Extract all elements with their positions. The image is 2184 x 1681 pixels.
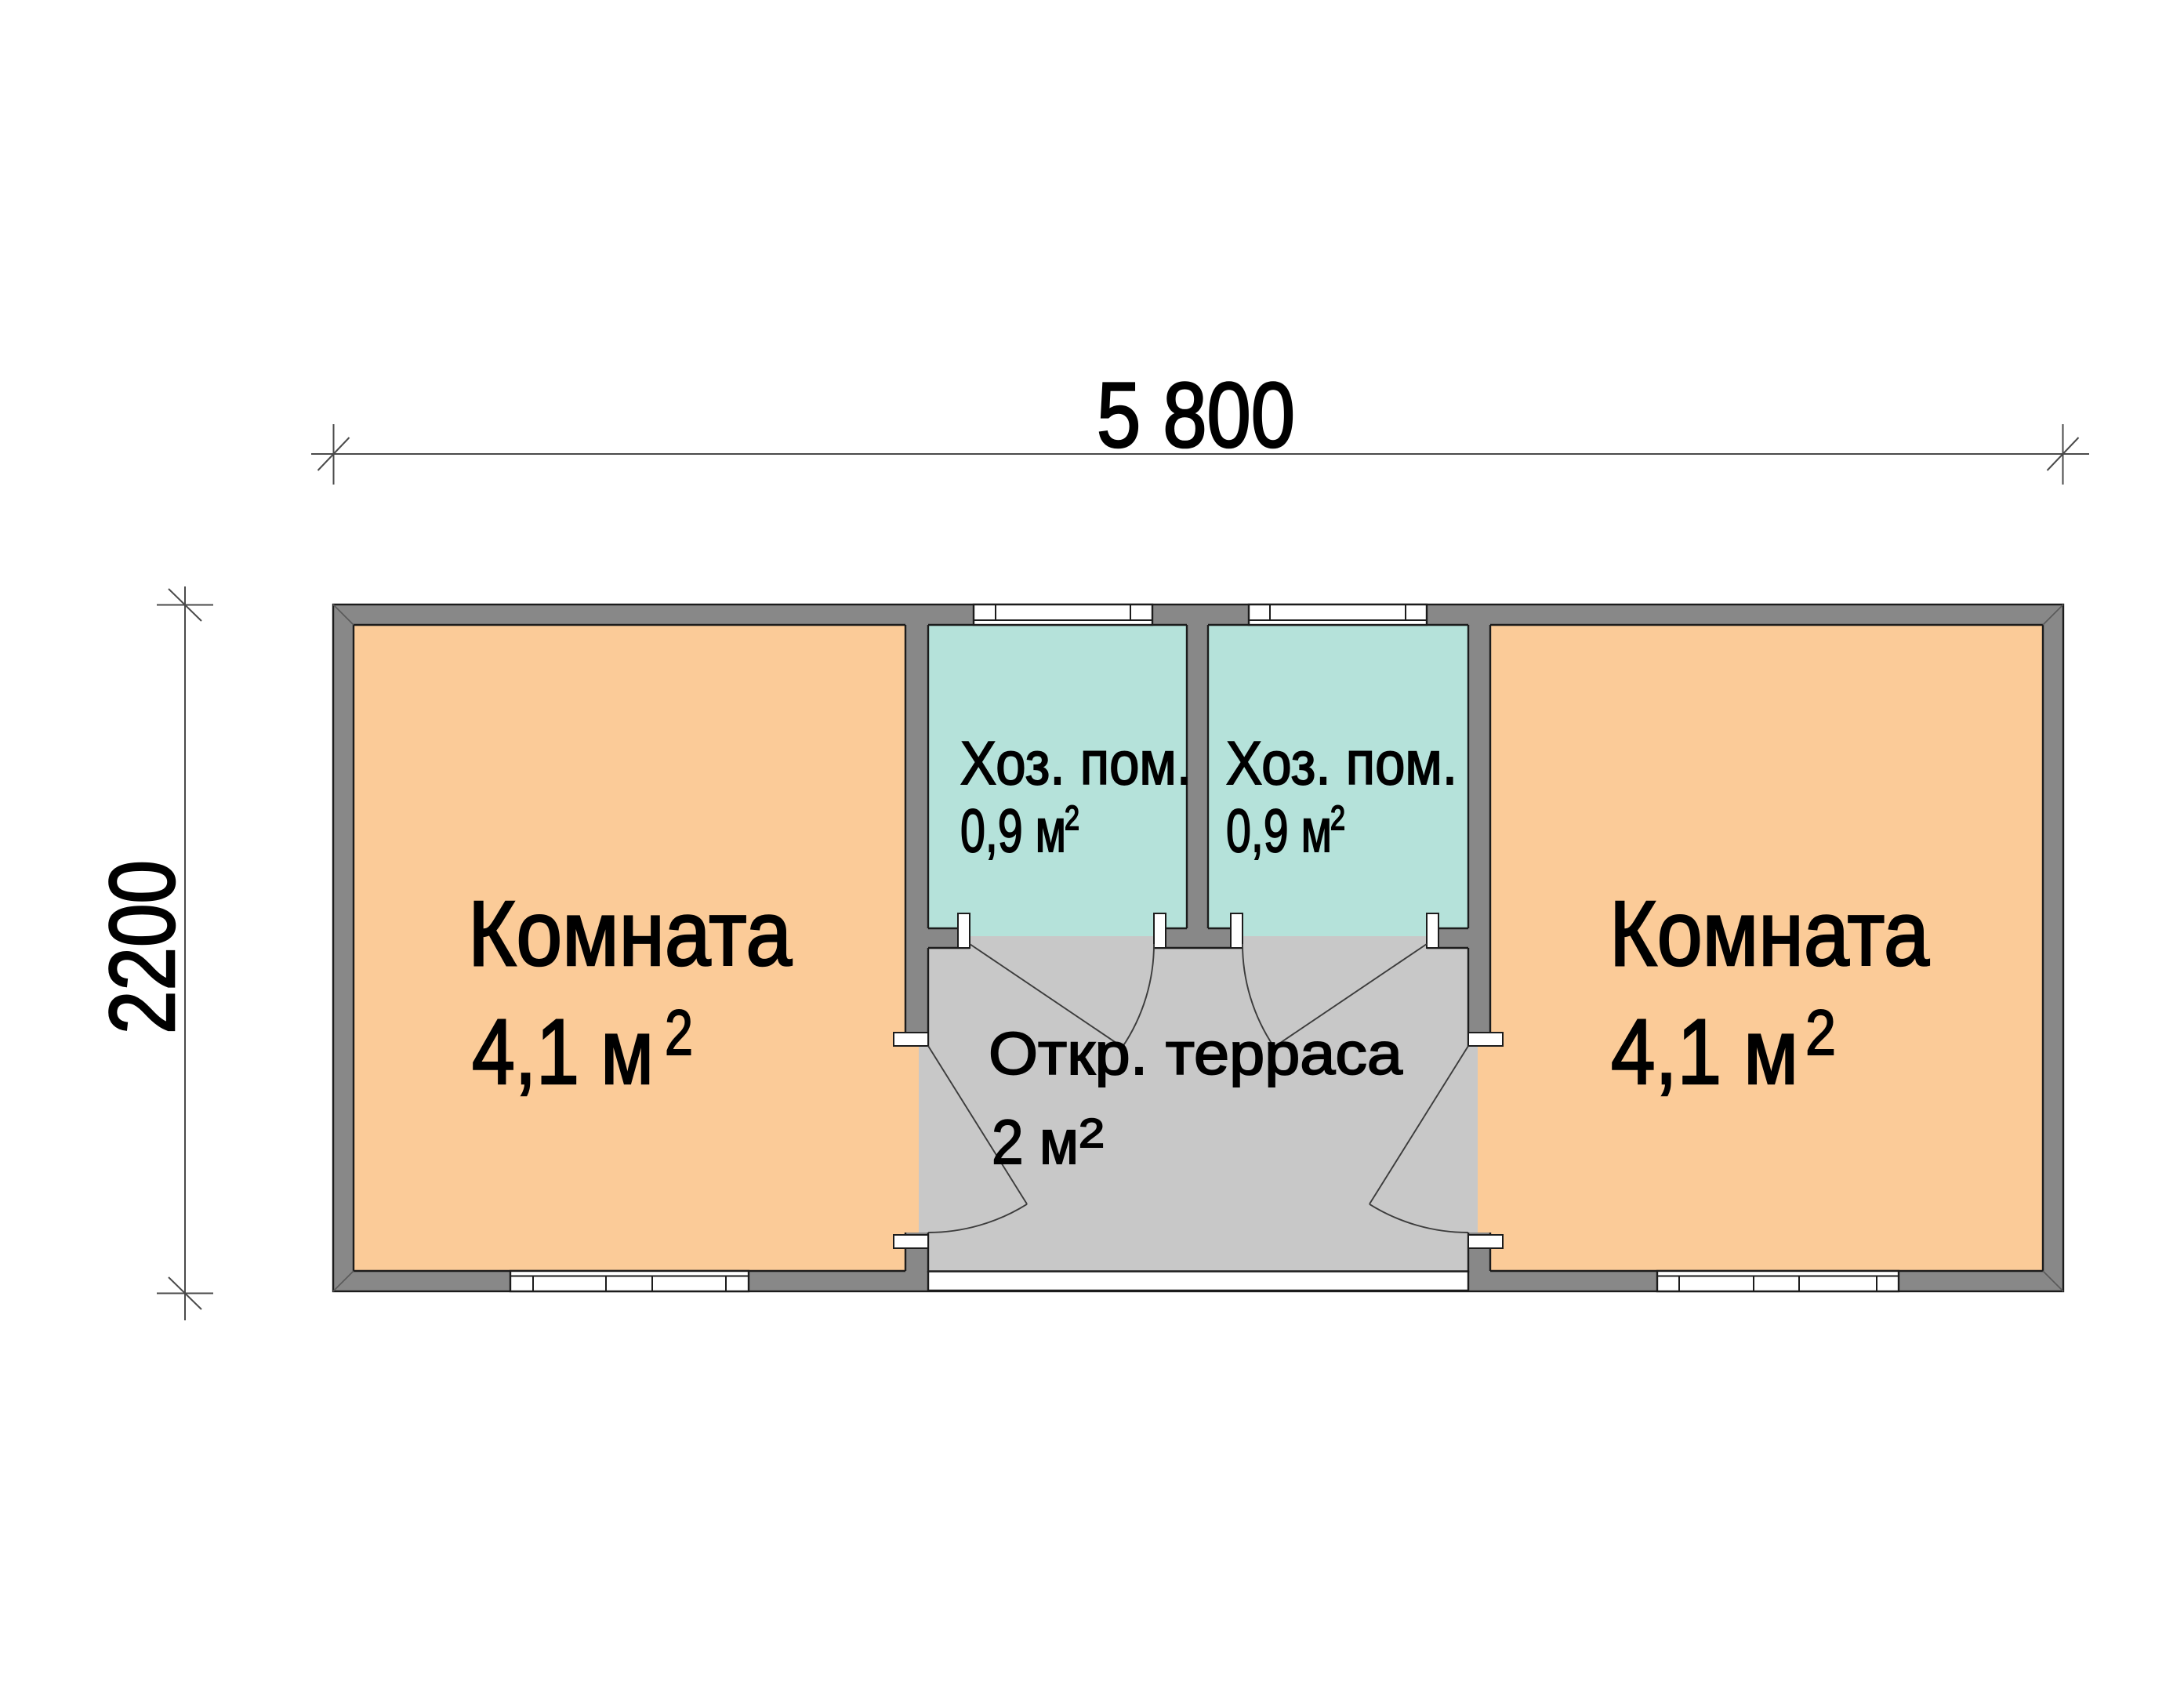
svg-text:0,9 м: 0,9 м bbox=[1226, 796, 1332, 865]
svg-text:2: 2 bbox=[1079, 1111, 1105, 1156]
svg-text:2: 2 bbox=[1330, 799, 1345, 837]
svg-text:4,1 м: 4,1 м bbox=[472, 1000, 654, 1104]
svg-text:2: 2 bbox=[1065, 799, 1079, 837]
svg-text:Хоз. пом.: Хоз. пом. bbox=[1226, 728, 1457, 797]
svg-text:2: 2 bbox=[1805, 997, 1836, 1069]
svg-text:2: 2 bbox=[665, 997, 693, 1069]
svg-text:5 800: 5 800 bbox=[1097, 364, 1295, 467]
svg-text:4,1 м: 4,1 м bbox=[1611, 1000, 1798, 1104]
svg-text:2200: 2200 bbox=[91, 860, 194, 1034]
svg-text:2 м: 2 м bbox=[992, 1107, 1079, 1177]
svg-text:Хоз. пом.: Хоз. пом. bbox=[960, 728, 1192, 797]
svg-text:Откр. терраса: Откр. терраса bbox=[989, 1021, 1403, 1087]
svg-text:Комната: Комната bbox=[468, 882, 792, 986]
svg-text:0,9 м: 0,9 м bbox=[960, 796, 1066, 865]
svg-text:Комната: Комната bbox=[1609, 882, 1929, 986]
